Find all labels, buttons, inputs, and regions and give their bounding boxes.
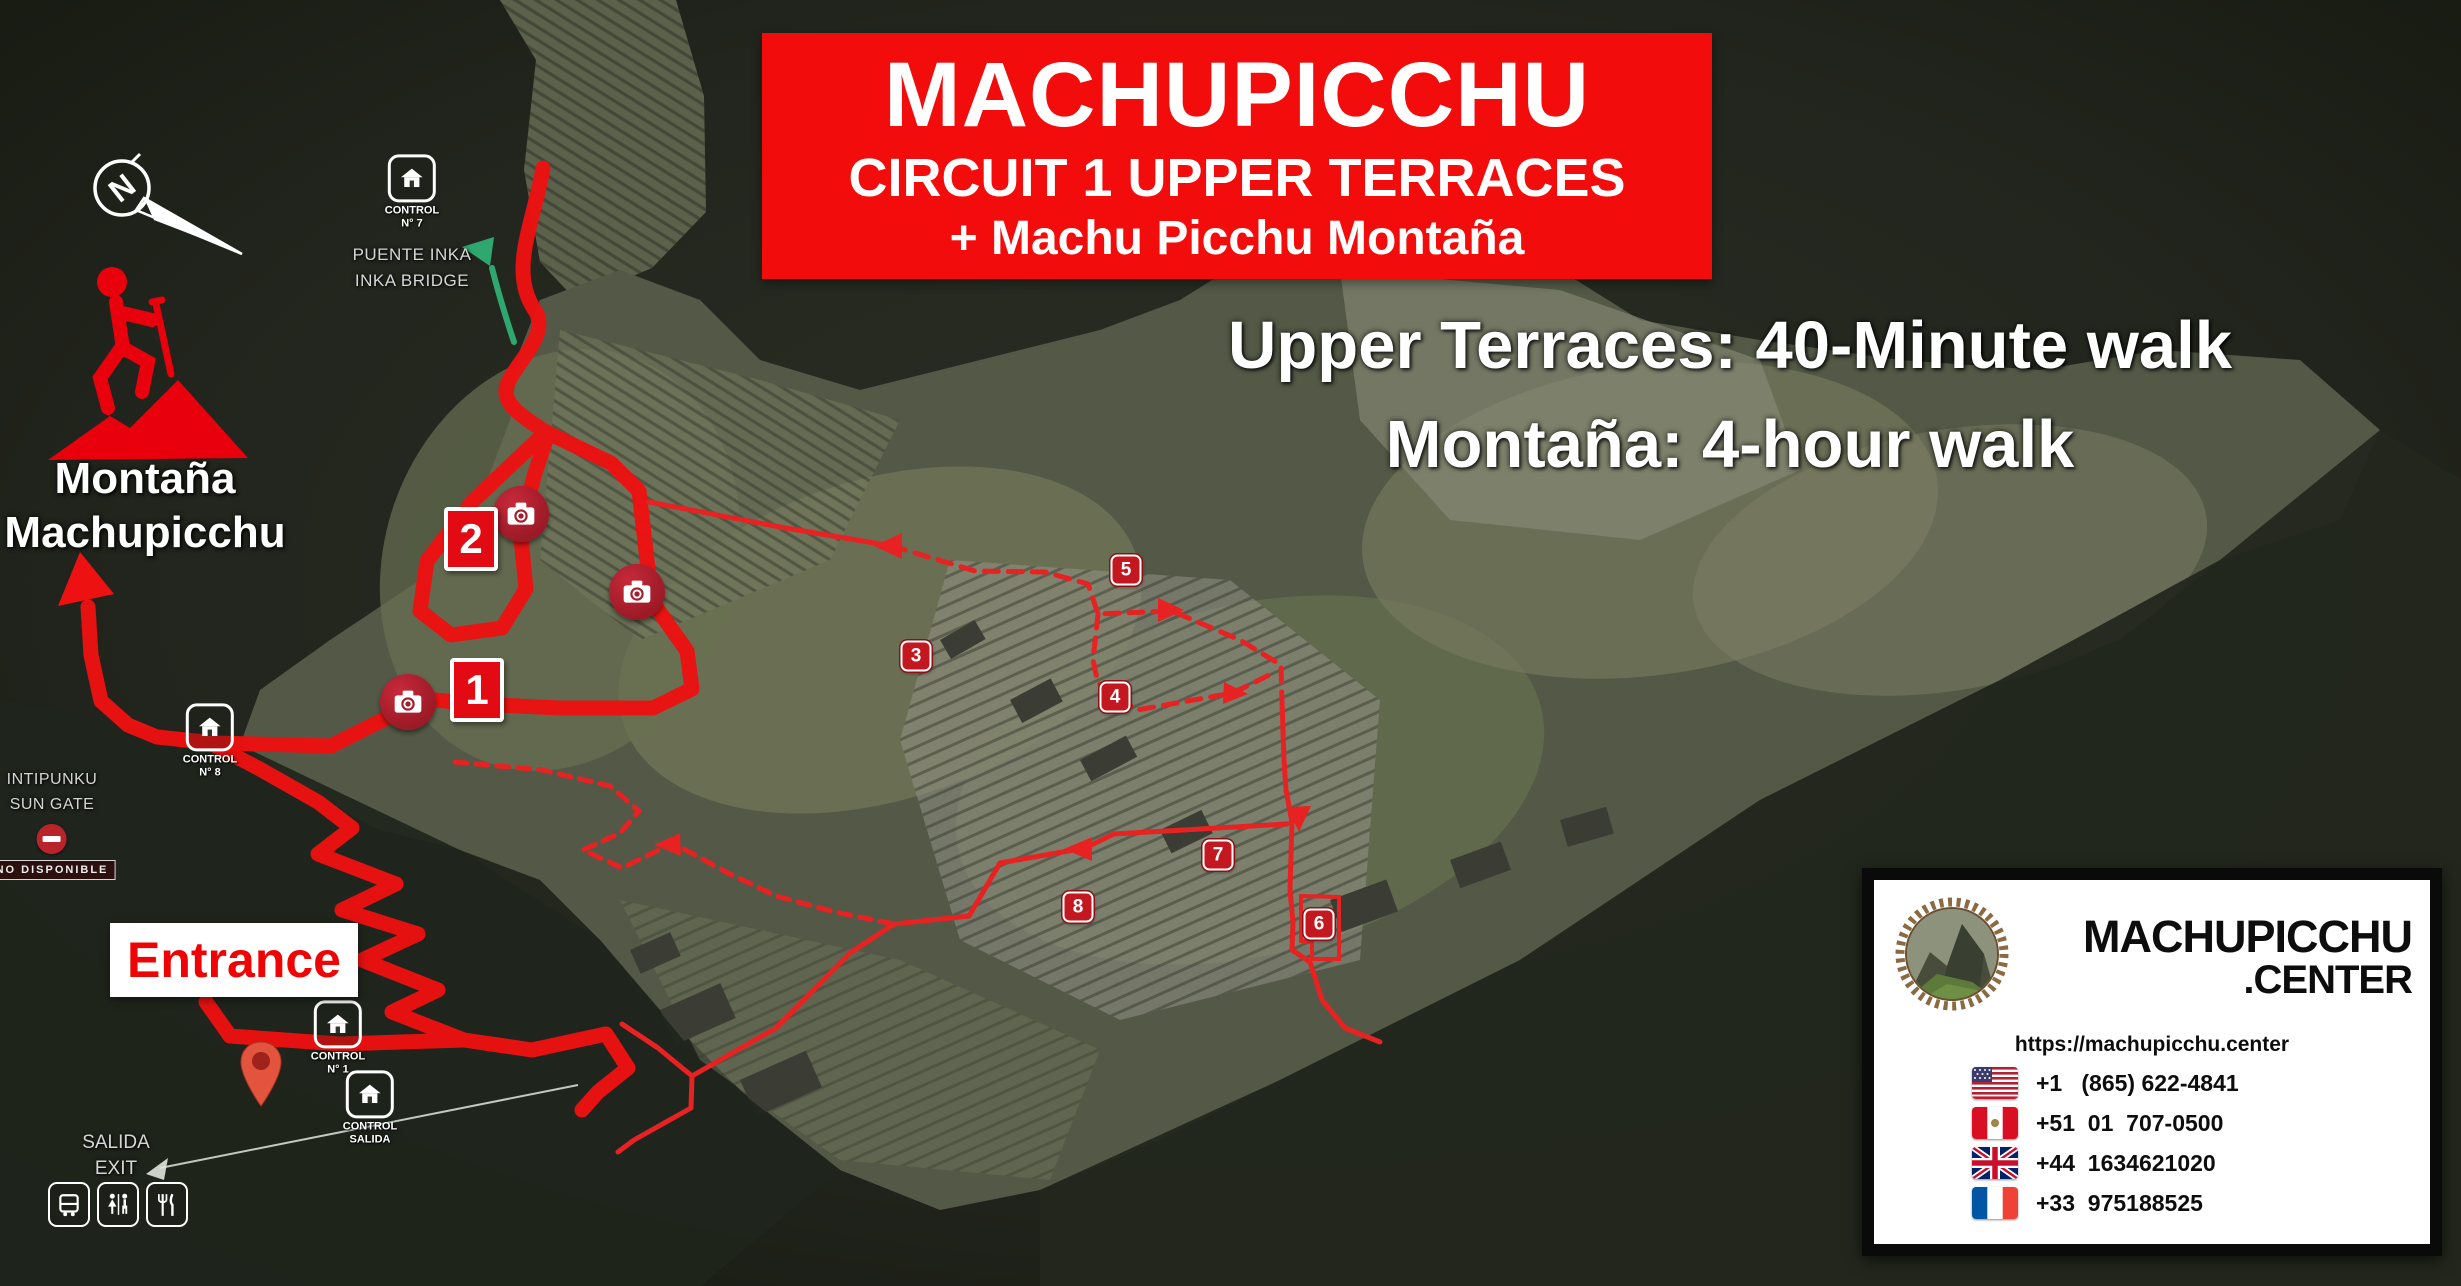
phone-number-peru[interactable]: +51 01 707-0500 <box>2036 1110 2223 1137</box>
uk-flag-icon <box>1972 1147 2018 1179</box>
puente-inka-es: PUENTE INKA <box>353 242 472 268</box>
compass-rose: N <box>88 150 258 275</box>
entrance-map-pin-icon <box>237 1040 285 1115</box>
waypoint-5: 5 <box>1111 555 1142 586</box>
title-banner: MACHUPICCHU CIRCUIT 1 UPPER TERRACES + M… <box>762 33 1712 279</box>
control-house-icon <box>314 1000 362 1048</box>
entrance-label: Entrance <box>127 931 341 989</box>
control-8-badge: CONTROL N° 8 <box>183 703 237 778</box>
montana-label-line2: Machupicchu <box>0 506 290 560</box>
amenities-row <box>48 1182 188 1227</box>
map-tagline: + Machu Picchu Montaña <box>950 215 1525 263</box>
intipunku-es: INTIPUNKU <box>0 768 115 793</box>
compass-north-letter: N <box>102 167 142 210</box>
contact-info-card: MACHUPICCHU .CENTER https://machupicchu.… <box>1862 868 2442 1256</box>
control-house-icon <box>346 1070 394 1118</box>
salida-exit-sign: SALIDA EXIT <box>60 1130 172 1181</box>
phone-row-us[interactable]: +1 (865) 622-4841 <box>1972 1067 2332 1099</box>
waypoint-8: 8 <box>1063 892 1094 923</box>
phone-row-france[interactable]: +33 975188525 <box>1972 1187 2332 1219</box>
intipunku-en: SUN GATE <box>0 793 115 818</box>
photo-plate-1: 1 <box>450 658 504 722</box>
peru-flag-icon <box>1972 1107 2018 1139</box>
photo-spot-camera-icon <box>493 486 549 542</box>
montana-machupicchu-label: Montaña Machupicchu <box>0 452 290 559</box>
brand-name-bottom: .CENTER <box>2022 960 2412 1000</box>
restrooms-icon <box>97 1182 139 1227</box>
control-salida-number: SALIDA <box>343 1133 397 1146</box>
waypoint-7: 7 <box>1203 840 1234 871</box>
phone-number-us[interactable]: +1 (865) 622-4841 <box>2036 1070 2239 1097</box>
puente-inka-en: INKA BRIDGE <box>353 268 472 294</box>
machu-picchu-circuit-map: MACHUPICCHU CIRCUIT 1 UPPER TERRACES + M… <box>0 0 2461 1286</box>
control-salida-word: CONTROL <box>343 1120 397 1133</box>
control-house-icon <box>186 703 234 751</box>
control-house-icon <box>388 154 436 202</box>
map-title: MACHUPICCHU <box>884 49 1590 141</box>
control-7-word: CONTROL <box>385 204 439 217</box>
phone-row-peru[interactable]: +51 01 707-0500 <box>1972 1107 2332 1139</box>
phone-number-uk[interactable]: +44 1634621020 <box>2036 1150 2216 1177</box>
control-7-number: N° 7 <box>385 217 439 230</box>
control-8-number: N° 8 <box>183 766 237 779</box>
control-1-word: CONTROL <box>311 1050 365 1063</box>
photo-plate-2: 2 <box>444 507 498 571</box>
entrance-label-box: Entrance <box>110 923 358 997</box>
brand-name-top: MACHUPICCHU <box>2022 913 2412 960</box>
phone-number-france[interactable]: +33 975188525 <box>2036 1190 2203 1217</box>
montana-duration: Montaña: 4-hour walk <box>1060 411 2400 478</box>
salida-label: SALIDA <box>60 1130 172 1156</box>
machupicchu-center-logo <box>1892 894 2012 1019</box>
control-salida-badge: CONTROL SALIDA <box>343 1070 397 1145</box>
puente-inka-label: PUENTE INKA INKA BRIDGE <box>353 242 472 293</box>
control-1-badge: CONTROL N° 1 <box>311 1000 365 1075</box>
waypoint-6: 6 <box>1304 909 1335 940</box>
montana-label-line1: Montaña <box>0 452 290 506</box>
control-8-word: CONTROL <box>183 753 237 766</box>
photo-spot-camera-icon <box>609 564 665 620</box>
website-url[interactable]: https://machupicchu.center <box>1892 1033 2412 1057</box>
restaurant-icon <box>146 1182 188 1227</box>
photo-spot-camera-icon <box>380 674 436 730</box>
usa-flag-icon <box>1972 1067 2018 1099</box>
upper-terraces-duration: Upper Terraces: 40-Minute walk <box>1060 312 2400 379</box>
exit-label: EXIT <box>60 1156 172 1182</box>
walk-duration-info: Upper Terraces: 40-Minute walk Montaña: … <box>1060 312 2400 478</box>
control-7-badge: CONTROL N° 7 <box>385 154 439 229</box>
france-flag-icon <box>1972 1187 2018 1219</box>
phone-row-uk[interactable]: +44 1634621020 <box>1972 1147 2332 1179</box>
hiker-mountain-icon <box>40 258 260 473</box>
intipunku-sign: INTIPUNKU SUN GATE NO DISPONIBLE <box>0 768 115 880</box>
bus-icon <box>48 1182 90 1227</box>
no-entry-icon <box>37 824 67 854</box>
map-subtitle: CIRCUIT 1 UPPER TERRACES <box>848 151 1625 205</box>
waypoint-3: 3 <box>901 641 932 672</box>
waypoint-4: 4 <box>1100 682 1131 713</box>
phone-list: +1 (865) 622-4841 +51 01 707-0500 <box>1972 1067 2332 1219</box>
intipunku-status-badge: NO DISPONIBLE <box>0 860 115 880</box>
